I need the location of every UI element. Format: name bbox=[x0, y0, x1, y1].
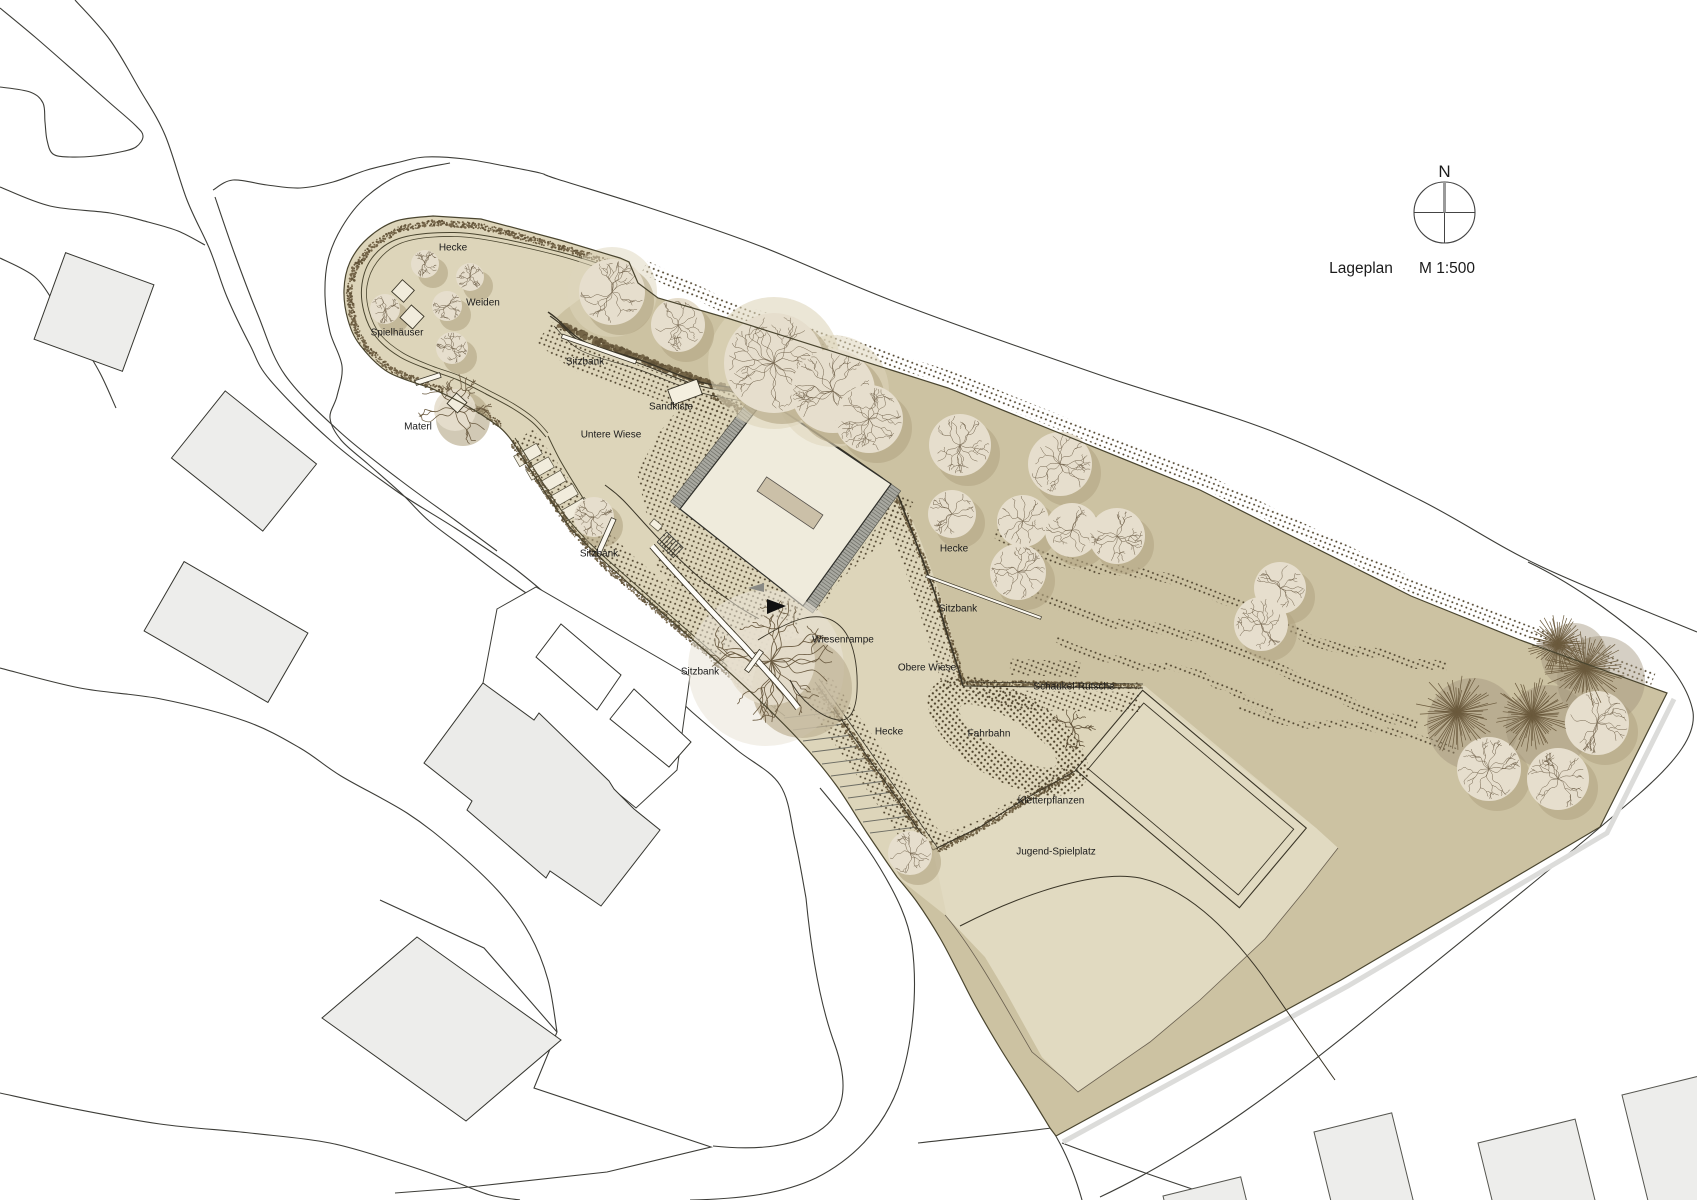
svg-text:Sitzbank: Sitzbank bbox=[939, 604, 978, 615]
svg-text:Weiden: Weiden bbox=[466, 298, 500, 309]
svg-text:Spielhäuser: Spielhäuser bbox=[371, 328, 424, 339]
svg-text:Sitzbank: Sitzbank bbox=[580, 549, 619, 560]
svg-text:Jugend-Spielplatz: Jugend-Spielplatz bbox=[1016, 847, 1096, 858]
svg-text:Wiesenrampe: Wiesenrampe bbox=[812, 635, 874, 646]
svg-text:Hecke: Hecke bbox=[439, 243, 468, 254]
svg-text:Schaukel-Rutsche: Schaukel-Rutsche bbox=[1033, 682, 1115, 693]
svg-text:Sitzbank: Sitzbank bbox=[566, 357, 605, 368]
svg-text:Kletterpflanzen: Kletterpflanzen bbox=[1018, 796, 1085, 807]
svg-text:Lageplan: Lageplan bbox=[1329, 260, 1393, 277]
svg-text:Untere Wiese: Untere Wiese bbox=[581, 430, 642, 441]
svg-text:Hecke: Hecke bbox=[875, 727, 904, 738]
svg-text:Hecke: Hecke bbox=[940, 544, 969, 555]
svg-text:M 1:500: M 1:500 bbox=[1419, 260, 1475, 277]
svg-text:Fahrbahn: Fahrbahn bbox=[968, 729, 1011, 740]
svg-text:Sitzbank: Sitzbank bbox=[681, 667, 720, 678]
svg-text:Materl: Materl bbox=[404, 422, 432, 433]
svg-text:Sandkiste: Sandkiste bbox=[649, 402, 693, 413]
svg-text:Obere Wiese: Obere Wiese bbox=[898, 663, 957, 674]
svg-text:N: N bbox=[1438, 162, 1450, 181]
